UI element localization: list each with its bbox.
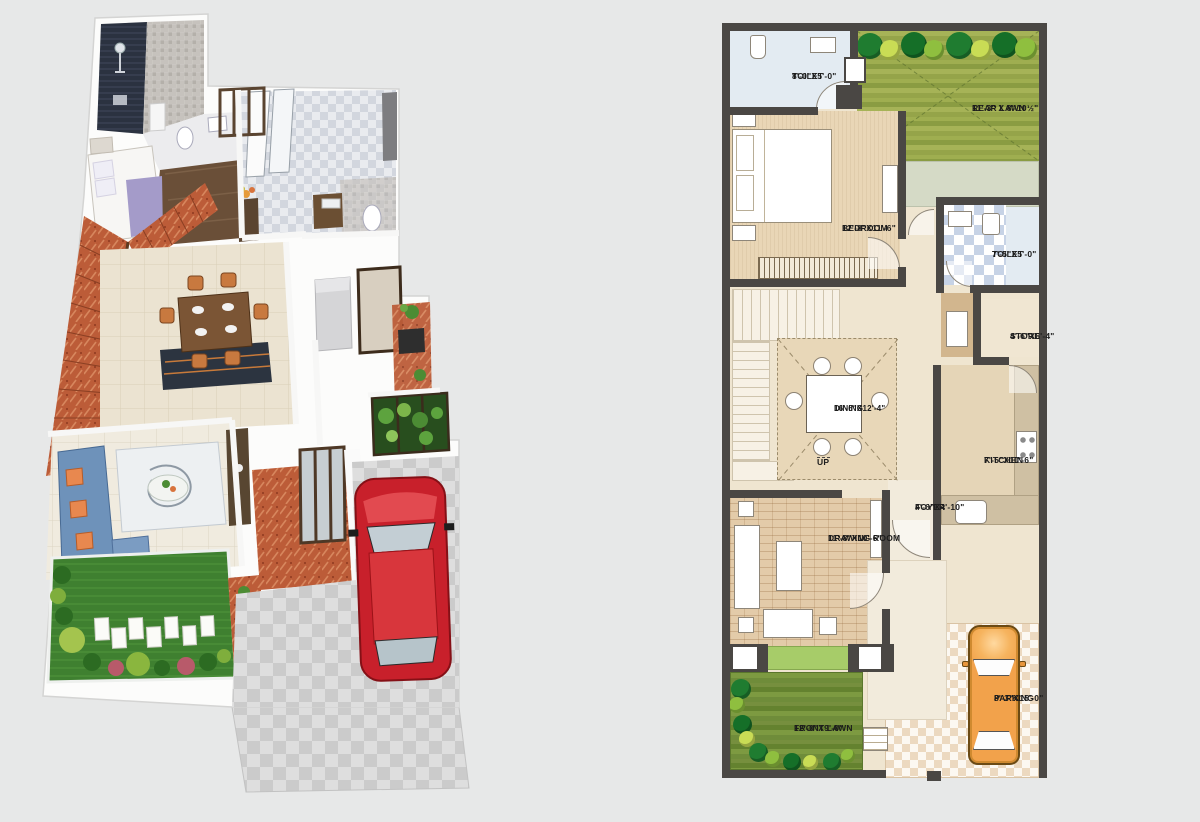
staircase-left-flight: [732, 341, 770, 461]
car-rear-window: [973, 731, 1015, 750]
stool: [819, 617, 837, 635]
porch-planter: [764, 646, 854, 670]
pillow: [736, 135, 754, 171]
wall-niche: [844, 57, 866, 83]
tree-icon: [880, 40, 900, 60]
balcony-planter: [372, 393, 449, 455]
armchair: [776, 541, 802, 591]
porch-pillar: [730, 644, 760, 672]
car-windshield: [973, 659, 1015, 676]
dining-3d: [100, 242, 296, 434]
porch-pillar: [856, 644, 884, 672]
tree-icon: [901, 32, 927, 58]
shrub-icon: [823, 753, 841, 771]
washbasin-icon: [810, 37, 836, 53]
shrub-icon: [729, 697, 745, 713]
bedside-table: [732, 225, 756, 241]
wall: [936, 197, 1039, 205]
washbasin-icon: [948, 211, 972, 227]
wall: [722, 107, 818, 115]
wall: [722, 490, 842, 498]
car-mirror: [962, 661, 969, 667]
wall: [882, 490, 890, 573]
tree-icon: [1015, 38, 1037, 60]
stool: [738, 617, 754, 633]
tree-icon: [857, 33, 883, 59]
coffee-table: [763, 609, 813, 638]
stove-3d: [398, 328, 425, 354]
wall: [973, 293, 981, 363]
front-lawn-3d: [48, 550, 236, 682]
wall: [848, 644, 856, 672]
utility-door: [946, 311, 968, 347]
wall: [722, 770, 886, 778]
dining-chair: [813, 357, 831, 375]
shrub-icon: [765, 751, 781, 767]
shrub-icon: [841, 749, 855, 763]
room-store: [981, 299, 1039, 357]
tree-icon: [924, 40, 944, 60]
shower-head-icon: [115, 43, 125, 53]
coffee-table-3d: [148, 475, 188, 501]
stool: [738, 501, 754, 517]
vanity-counter: [313, 193, 343, 229]
toilet-wc-icon: [982, 213, 1000, 235]
wall: [898, 111, 906, 239]
toilet-wc-icon: [750, 35, 766, 59]
shrub-icon: [803, 755, 818, 770]
wall: [836, 85, 862, 109]
front-door: [300, 447, 345, 543]
wall: [884, 644, 894, 672]
wardrobe: [758, 257, 878, 279]
sofa-2d: [734, 525, 760, 609]
toilet-wc: [363, 205, 381, 231]
2d-floor-plan: TOILET8'-0"X5'-0" REAR LAWN11'-3" X 8'-1…: [722, 23, 1055, 783]
wall: [933, 365, 941, 560]
wall: [1039, 23, 1047, 778]
driveway: [232, 707, 469, 792]
wall: [722, 23, 1047, 31]
real-estate-floorplan-page: TOILET8'-0"X5'-0" REAR LAWN11'-3" X 8'-1…: [0, 0, 1200, 822]
wall: [722, 23, 730, 778]
wall: [970, 285, 1039, 293]
car-mirror: [1019, 661, 1026, 667]
dining-chair: [785, 392, 803, 410]
shrub-icon: [731, 679, 751, 699]
dining-chair: [813, 438, 831, 456]
wall: [722, 279, 906, 287]
dining-chair: [844, 438, 862, 456]
dining-chair: [844, 357, 862, 375]
tree-icon: [992, 32, 1018, 58]
staircase-upper-flight: [732, 289, 840, 341]
tree-icon: [946, 32, 973, 59]
wall: [936, 205, 944, 293]
dining-table-3d: [178, 292, 252, 352]
wall: [973, 357, 1009, 365]
red-car: [346, 476, 459, 682]
shrub-icon: [783, 753, 801, 771]
pillow: [736, 175, 754, 211]
entry-steps: [863, 727, 888, 751]
cupboard-panel: [882, 165, 898, 213]
blanket-line: [764, 130, 765, 222]
tv-unit: [870, 500, 882, 558]
wall: [927, 771, 941, 781]
shelf-unit: [150, 103, 165, 131]
room-front-lawn: [730, 672, 863, 770]
shower-area: [97, 22, 147, 134]
tree-icon: [971, 40, 991, 60]
